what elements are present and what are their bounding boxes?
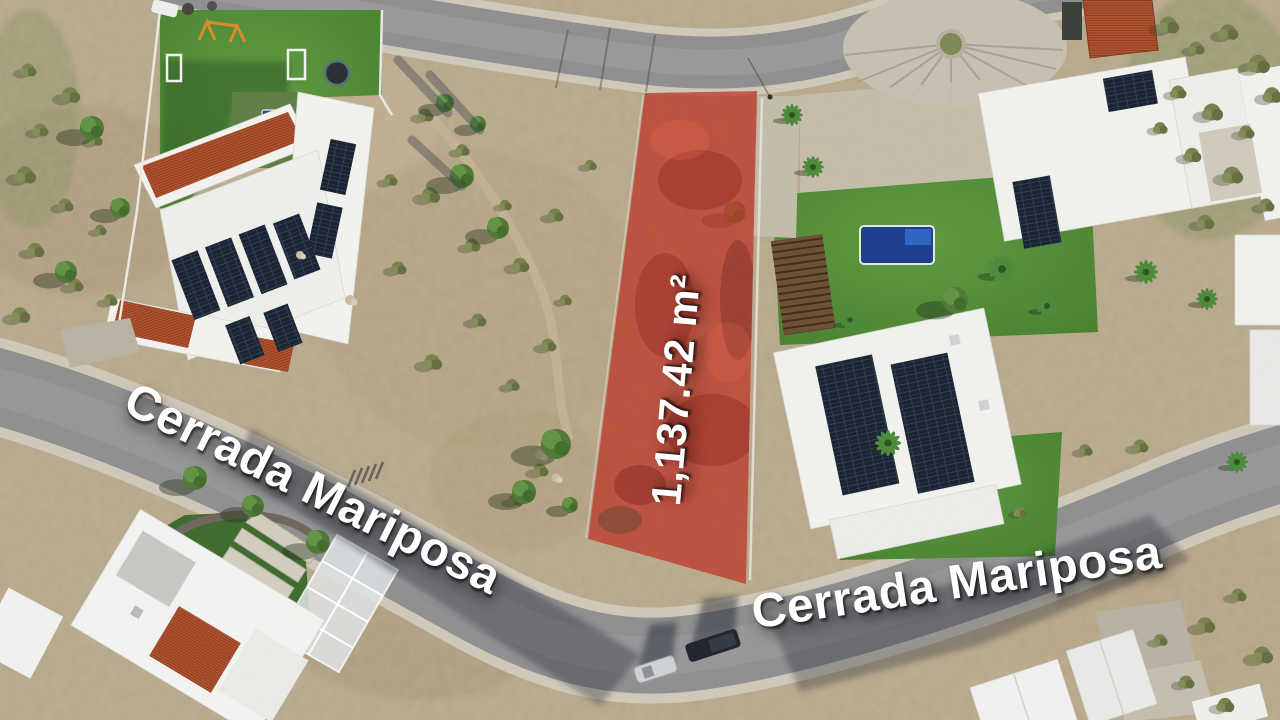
photo-grain xyxy=(0,0,1280,720)
aerial-photo: Cerrada Mariposa Cerrada Mariposa 1,137.… xyxy=(0,0,1280,720)
aerial-scene xyxy=(0,0,1280,720)
